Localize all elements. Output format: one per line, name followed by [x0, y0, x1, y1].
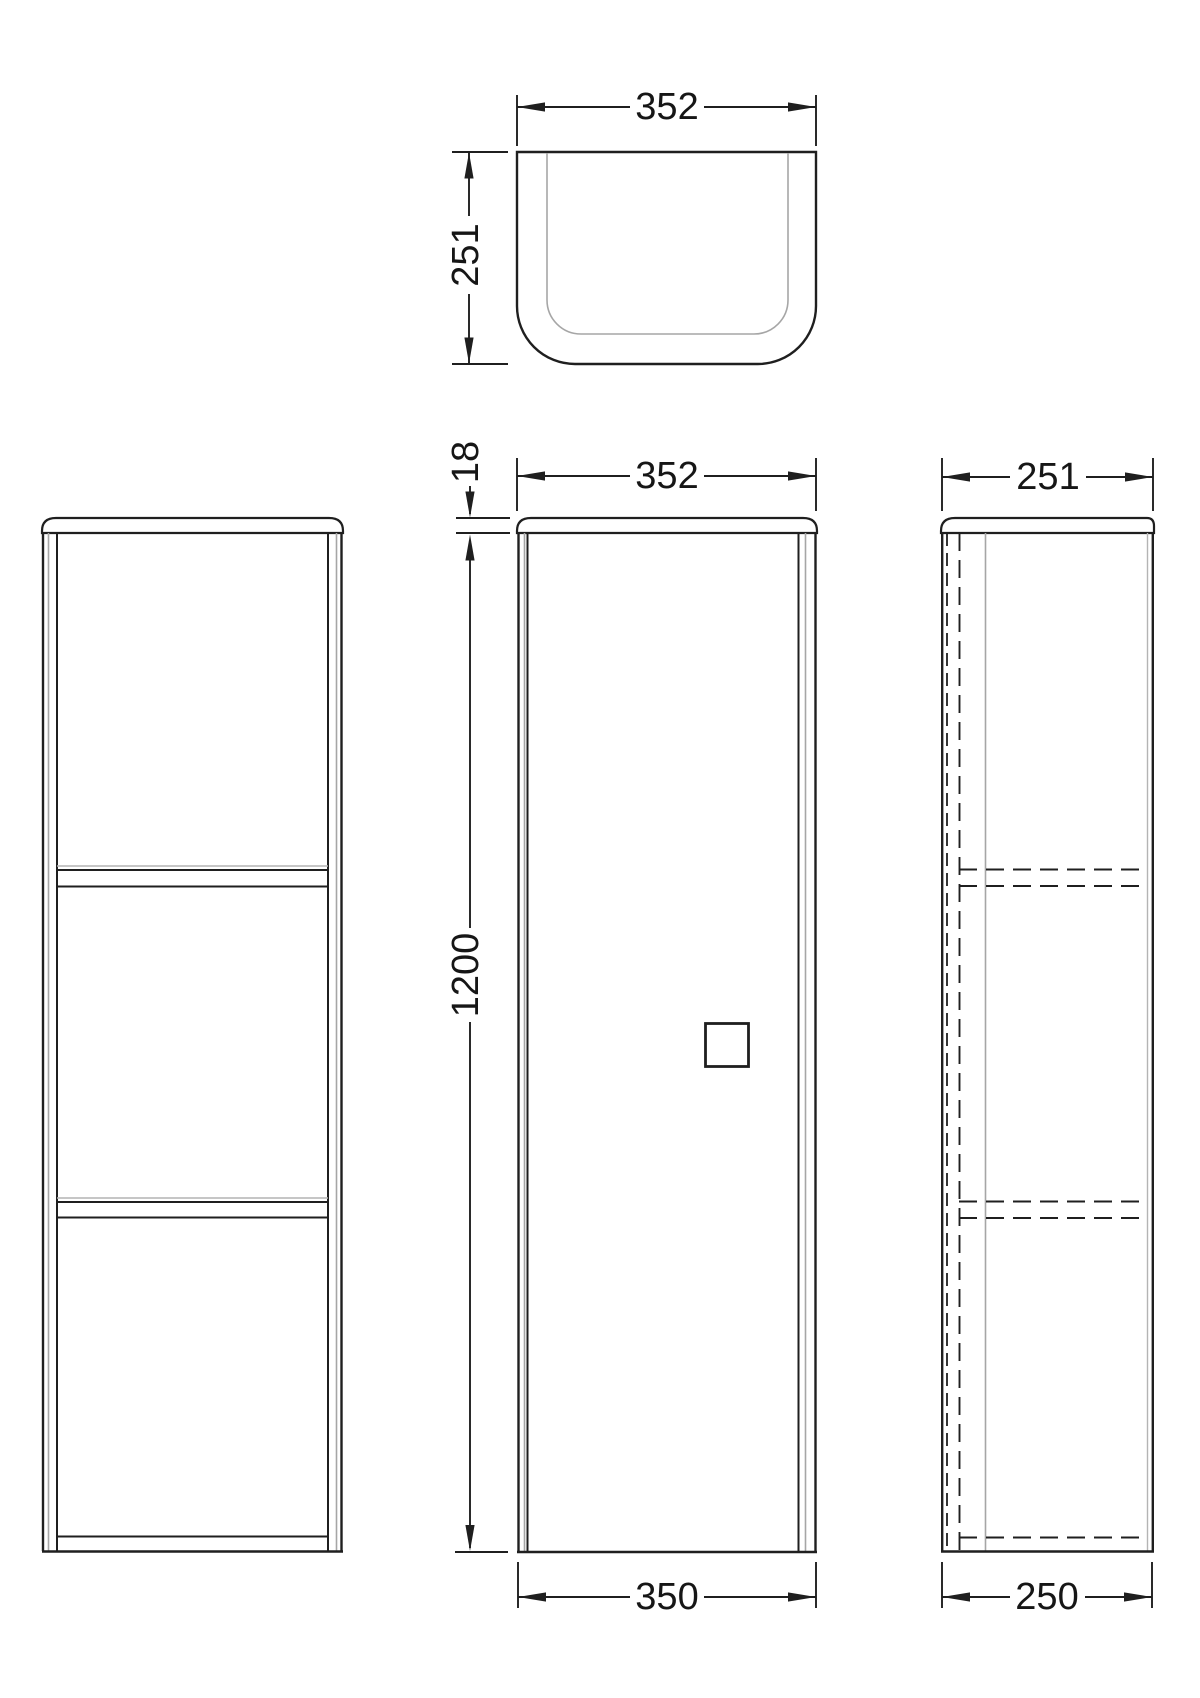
dim-front-height-label: 1200	[445, 933, 487, 1018]
side-view-top-panel	[941, 518, 1154, 533]
front-view-door	[517, 518, 817, 1552]
top-view-inner-line	[547, 153, 788, 334]
technical-drawing-canvas: 352 251	[0, 0, 1200, 1698]
front-view-open	[42, 518, 343, 1552]
dimension-side-depth: 251	[942, 456, 1153, 511]
dim-top-depth-label: 251	[445, 223, 487, 286]
dim-side-door-depth-label: 250	[1015, 1576, 1078, 1618]
dim-top-width-label: 352	[635, 86, 698, 128]
side-view-hidden-shelf-1	[959, 870, 1148, 887]
side-view	[941, 518, 1154, 1552]
dim-top-thickness-label: 18	[445, 441, 487, 483]
dimension-door-width: 350	[518, 1562, 816, 1618]
dimension-top-thickness: 18	[445, 441, 510, 533]
dim-front-width-label: 352	[635, 455, 698, 497]
dimension-top-width: 352	[517, 86, 816, 146]
dimension-front-width: 352	[517, 455, 816, 511]
dimension-top-depth: 251	[445, 152, 508, 364]
open-view-shelf-1	[57, 866, 328, 887]
door-view-top-panel	[517, 518, 817, 533]
top-view	[517, 152, 816, 364]
door-handle	[706, 1024, 749, 1067]
top-view-outline	[517, 152, 816, 364]
dimension-front-height: 1200	[445, 535, 508, 1553]
dim-door-width-label: 350	[635, 1576, 698, 1618]
cabinet-drawing-svg: 352 251	[0, 0, 1200, 1698]
side-view-hidden-shelf-2	[959, 1202, 1148, 1219]
dimension-side-door-depth: 250	[942, 1562, 1152, 1618]
open-view-top-panel	[42, 518, 343, 533]
dim-side-depth-label: 251	[1016, 456, 1079, 498]
open-view-shelf-2	[57, 1198, 328, 1218]
